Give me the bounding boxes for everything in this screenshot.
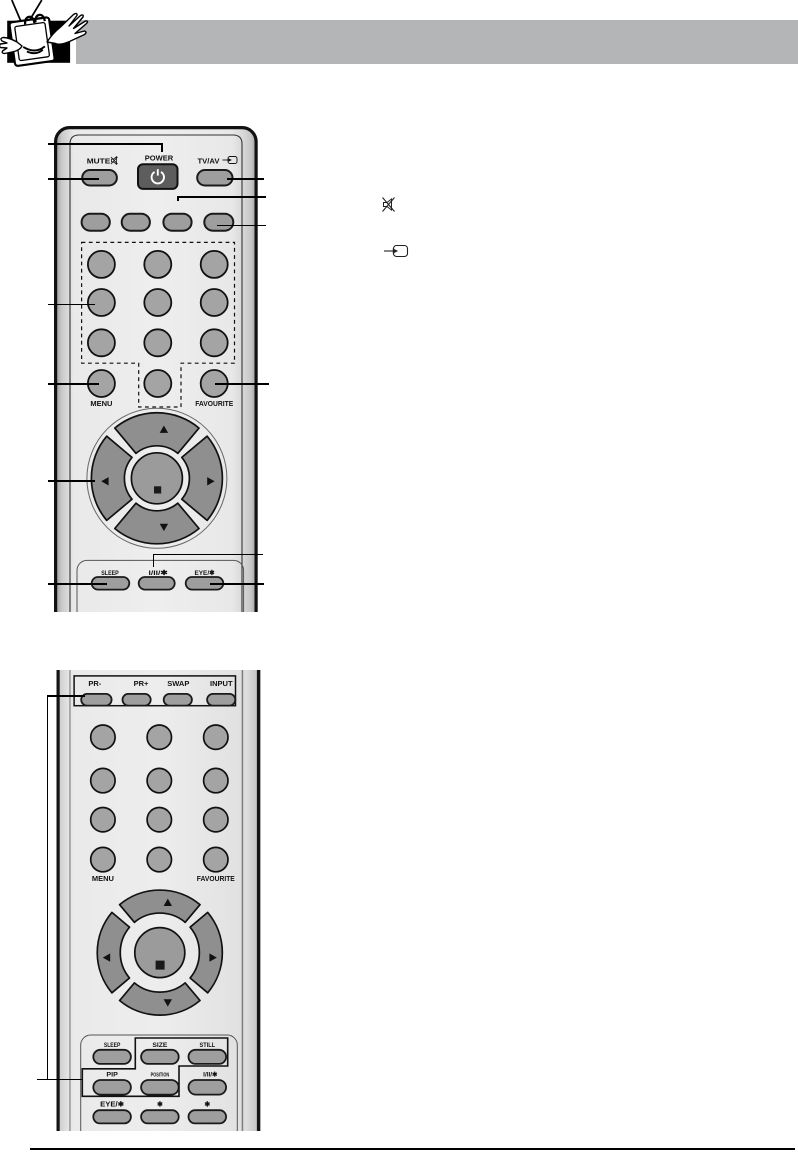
svg-text:✱: ✱	[157, 1101, 163, 1109]
svg-text:EYE/✱: EYE/✱	[100, 1101, 124, 1109]
svg-text:✱: ✱	[204, 1101, 210, 1109]
svg-text:EYE/✱: EYE/✱	[195, 569, 215, 577]
svg-text:MENU: MENU	[90, 399, 112, 408]
svg-text:SWAP: SWAP	[167, 679, 189, 688]
svg-text:INPUT: INPUT	[210, 679, 233, 688]
svg-text:SLEEP: SLEEP	[101, 570, 119, 577]
svg-text:MUTE: MUTE	[87, 159, 111, 166]
svg-text:PR-: PR-	[88, 679, 101, 688]
svg-text:TV/AV: TV/AV	[198, 159, 220, 166]
svg-text:I/II/✱: I/II/✱	[203, 1072, 217, 1079]
svg-text:SIZE: SIZE	[152, 1042, 167, 1049]
svg-text:FAVOURITE: FAVOURITE	[195, 401, 233, 408]
svg-text:POSITION: POSITION	[151, 1073, 170, 1079]
svg-text:POWER: POWER	[145, 156, 174, 163]
svg-text:FAVOURITE: FAVOURITE	[197, 876, 235, 883]
svg-text:SLEEP: SLEEP	[104, 1042, 121, 1049]
svg-text:I/II/✱: I/II/✱	[149, 569, 168, 577]
svg-text:PIP: PIP	[106, 1072, 118, 1079]
svg-text:MENU: MENU	[92, 874, 114, 883]
svg-text:PR+: PR+	[134, 679, 149, 688]
svg-text:STILL: STILL	[200, 1042, 216, 1049]
